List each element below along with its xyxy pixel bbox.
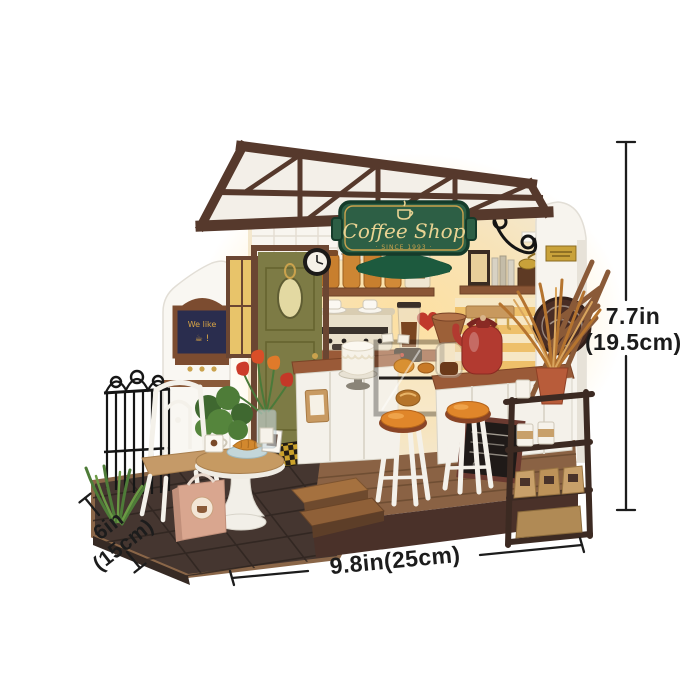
height-dimension-label: 7.7in (19.5cm) bbox=[585, 303, 681, 356]
shelf-board bbox=[316, 288, 434, 296]
counter-menu-holder bbox=[305, 389, 329, 422]
notice-board: We like ☕ ! bbox=[175, 298, 230, 372]
coffee-mug bbox=[205, 435, 227, 452]
sign-title: Coffee Shop bbox=[343, 219, 466, 243]
wall-clock bbox=[303, 248, 331, 276]
chalkboard-line1: We like bbox=[188, 320, 217, 329]
door-window bbox=[278, 278, 302, 318]
sign-subtitle: · SINCE 1993 · bbox=[376, 244, 433, 251]
height-value-cm: (19.5cm) bbox=[585, 329, 681, 355]
door-knob bbox=[312, 353, 318, 359]
height-value-inches: 7.7in bbox=[585, 303, 681, 329]
chalkboard-line2: ☕ ! bbox=[195, 334, 210, 344]
pastry-display-case bbox=[376, 333, 442, 414]
product-photo-miniature-coffee-shop: We like ☕ ! while bbox=[0, 0, 700, 700]
brass-plaque bbox=[546, 246, 576, 261]
framed-picture bbox=[468, 250, 490, 286]
